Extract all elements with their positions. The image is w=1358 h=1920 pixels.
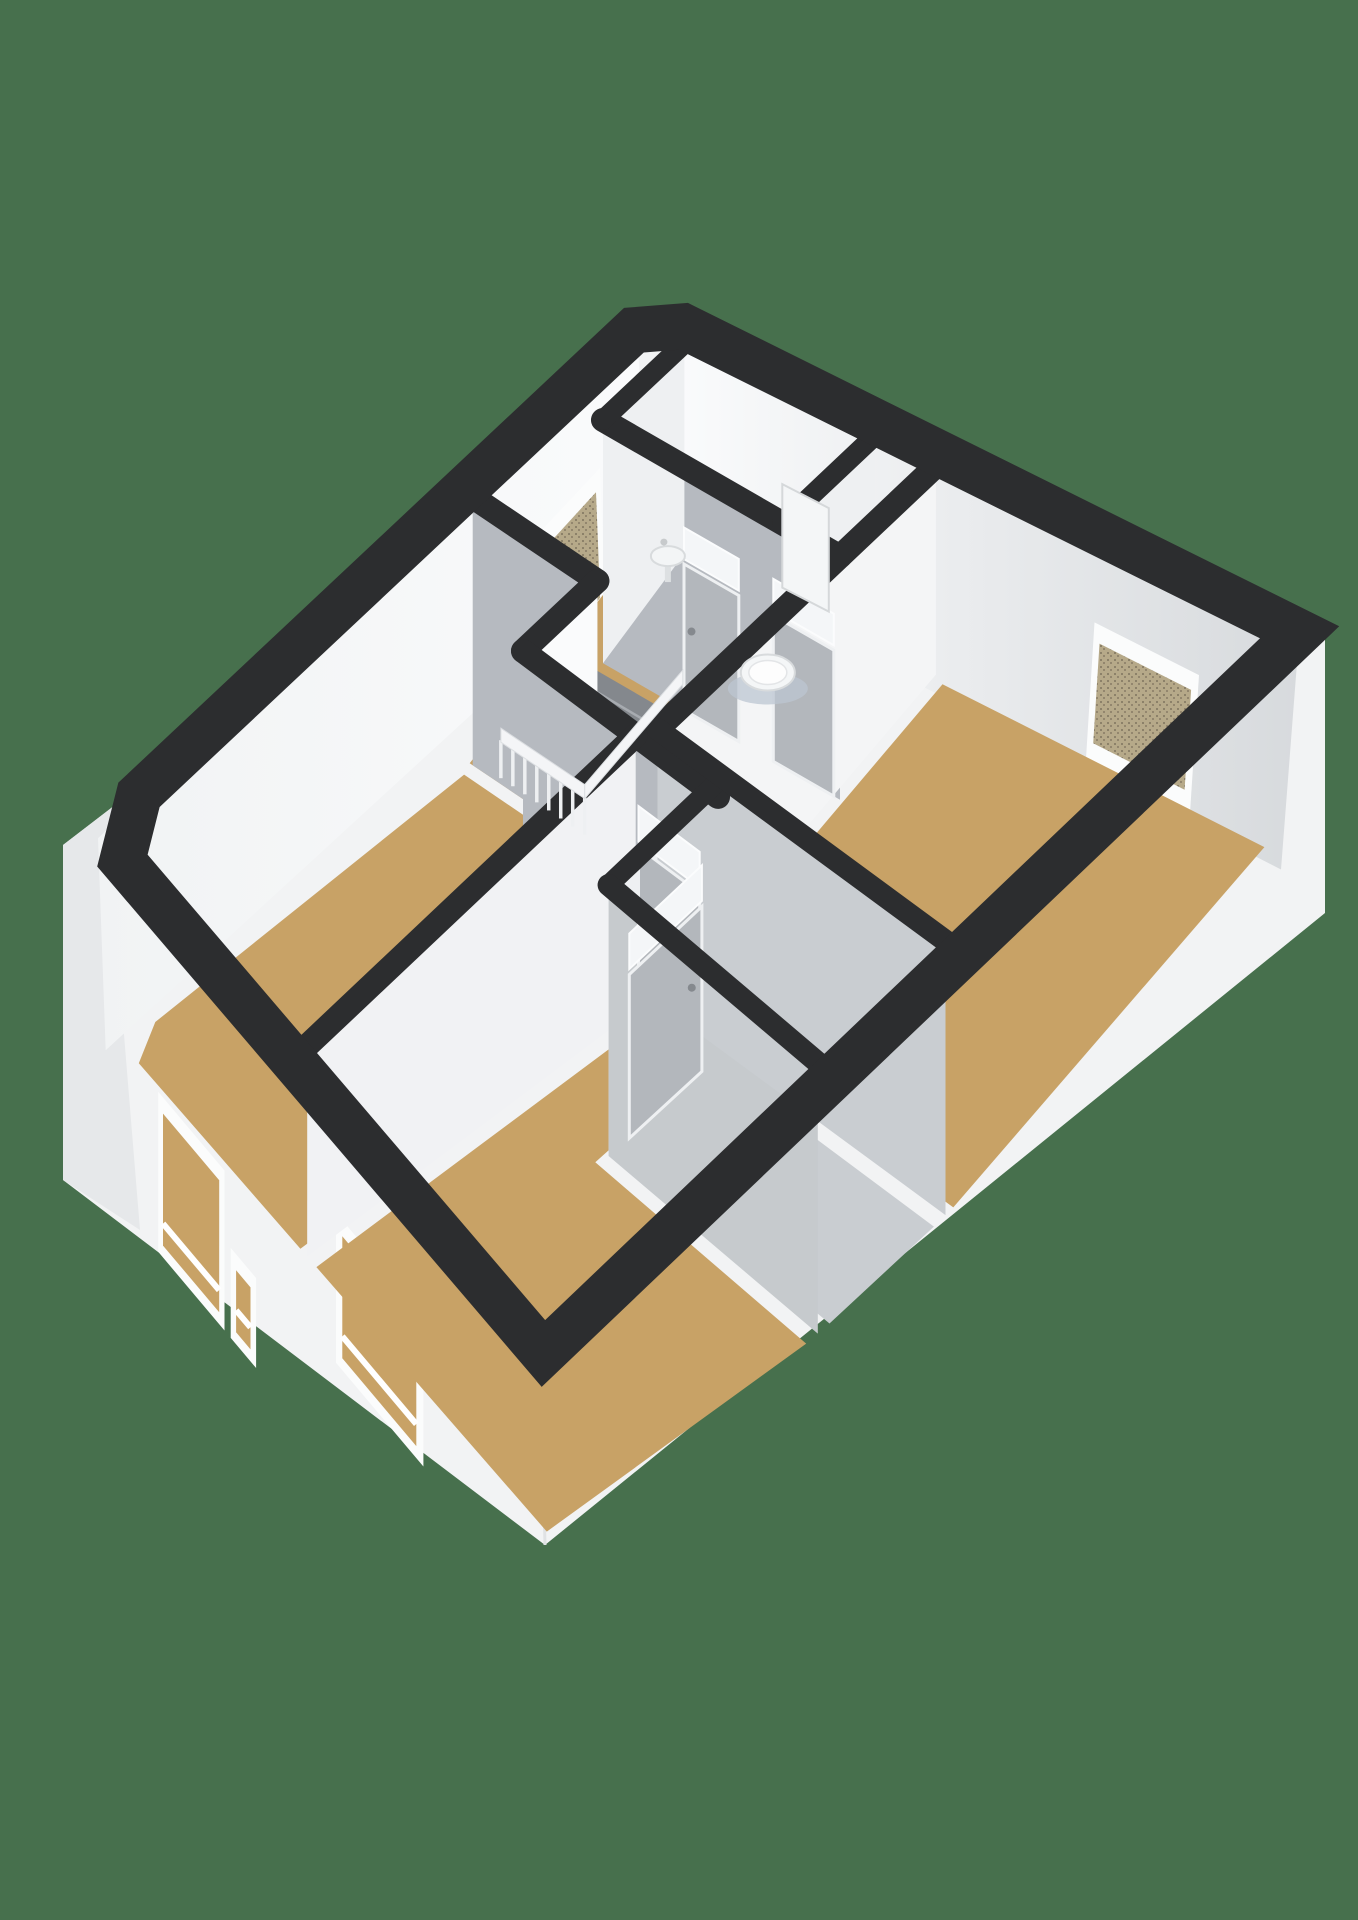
sink-tap bbox=[660, 539, 667, 546]
door-handle bbox=[688, 984, 696, 992]
toilet-seat bbox=[749, 661, 787, 685]
sink-basin bbox=[651, 546, 685, 566]
door-handle bbox=[687, 628, 695, 636]
floor-plan-3d bbox=[0, 0, 1358, 1920]
floor-plan-stage bbox=[0, 0, 1358, 1920]
